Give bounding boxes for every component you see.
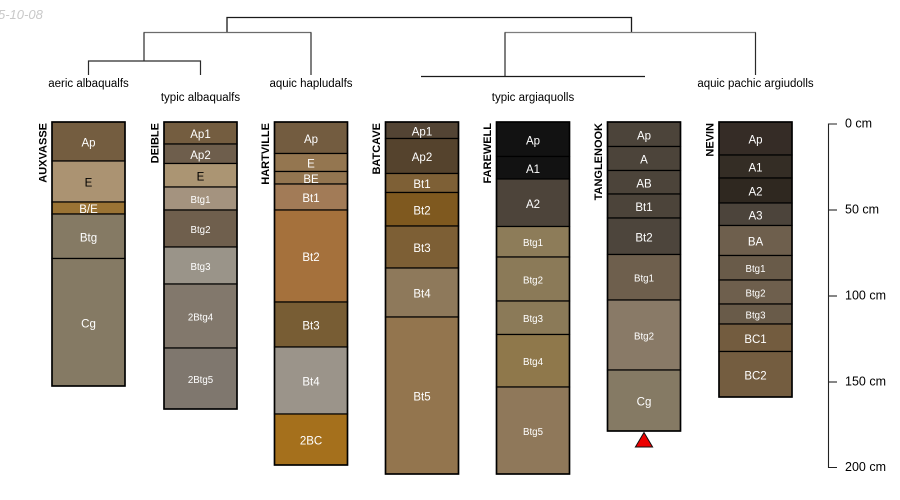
svg-text:A2: A2 (526, 199, 540, 211)
svg-text:E: E (85, 178, 93, 190)
svg-text:2Btg4: 2Btg4 (188, 312, 214, 323)
svg-text:A1: A1 (748, 163, 762, 175)
svg-text:Bt4: Bt4 (413, 289, 431, 301)
svg-text:E: E (197, 171, 205, 183)
svg-text:Ap2: Ap2 (190, 150, 210, 162)
svg-text:Ap: Ap (304, 134, 318, 146)
svg-text:A: A (640, 155, 648, 167)
svg-text:5-10-08: 5-10-08 (0, 7, 44, 22)
svg-text:Btg1: Btg1 (634, 274, 654, 285)
svg-text:50 cm: 50 cm (845, 203, 879, 217)
svg-text:Bt5: Bt5 (413, 392, 430, 404)
svg-text:200 cm: 200 cm (845, 460, 886, 474)
svg-text:Bt2: Bt2 (413, 205, 430, 217)
svg-text:Bt1: Bt1 (302, 193, 319, 205)
svg-text:100 cm: 100 cm (845, 289, 886, 303)
svg-text:2BC: 2BC (300, 436, 322, 448)
svg-text:Cg: Cg (81, 318, 96, 330)
svg-text:Ap2: Ap2 (412, 152, 432, 164)
svg-text:typic argiaquolls: typic argiaquolls (492, 92, 575, 104)
svg-text:typic albaqualfs: typic albaqualfs (161, 92, 241, 104)
svg-text:Btg2: Btg2 (634, 331, 654, 342)
svg-text:TANGLENOOK: TANGLENOOK (593, 123, 605, 200)
svg-text:E: E (307, 159, 315, 171)
svg-text:Bt1: Bt1 (413, 179, 430, 191)
svg-text:Bt4: Bt4 (302, 377, 320, 389)
svg-text:DEIBLE: DEIBLE (150, 123, 162, 163)
svg-text:Btg3: Btg3 (746, 310, 766, 321)
svg-text:Ap: Ap (81, 138, 95, 150)
svg-text:Btg2: Btg2 (191, 225, 211, 236)
svg-text:Bt2: Bt2 (635, 232, 652, 244)
svg-text:BA: BA (748, 237, 764, 249)
svg-text:A1: A1 (526, 164, 540, 176)
svg-text:150 cm: 150 cm (845, 375, 886, 389)
svg-text:Bt3: Bt3 (302, 321, 319, 333)
svg-text:aquic hapludalfs: aquic hapludalfs (269, 78, 352, 90)
svg-text:Btg1: Btg1 (191, 195, 211, 206)
svg-text:HARTVILLE: HARTVILLE (260, 123, 272, 185)
svg-text:Cg: Cg (637, 397, 652, 409)
svg-text:0 cm: 0 cm (845, 117, 872, 131)
svg-text:Ap: Ap (637, 130, 651, 142)
svg-text:Btg3: Btg3 (191, 262, 211, 273)
svg-text:Btg5: Btg5 (523, 427, 543, 438)
svg-text:Btg2: Btg2 (523, 275, 543, 286)
svg-text:NEVIN: NEVIN (705, 123, 717, 157)
svg-text:BC1: BC1 (744, 334, 766, 346)
svg-text:aeric albaqualfs: aeric albaqualfs (48, 78, 129, 90)
svg-text:Ap1: Ap1 (412, 126, 432, 138)
svg-text:Btg1: Btg1 (746, 264, 766, 275)
svg-text:2Btg5: 2Btg5 (188, 375, 213, 386)
svg-text:A3: A3 (748, 210, 762, 222)
svg-text:Bt2: Bt2 (302, 252, 319, 264)
svg-text:Btg: Btg (80, 232, 97, 244)
svg-text:Btg3: Btg3 (523, 314, 543, 325)
svg-text:BATCAVE: BATCAVE (371, 123, 383, 175)
svg-text:AB: AB (636, 178, 652, 190)
svg-text:AUXVASSE: AUXVASSE (38, 123, 50, 183)
svg-text:Btg1: Btg1 (523, 238, 543, 249)
svg-text:Bt3: Bt3 (413, 243, 430, 255)
svg-text:Ap: Ap (526, 135, 540, 147)
svg-text:A2: A2 (748, 187, 762, 199)
svg-text:Btg4: Btg4 (523, 357, 544, 368)
svg-text:Ap1: Ap1 (190, 129, 210, 141)
svg-text:FAREWELL: FAREWELL (482, 123, 494, 184)
svg-text:BC2: BC2 (744, 370, 766, 382)
svg-text:Ap: Ap (748, 135, 762, 147)
svg-text:Bt1: Bt1 (635, 202, 652, 214)
svg-text:Btg2: Btg2 (746, 288, 766, 299)
svg-text:aquic pachic argiudolls: aquic pachic argiudolls (697, 78, 814, 90)
